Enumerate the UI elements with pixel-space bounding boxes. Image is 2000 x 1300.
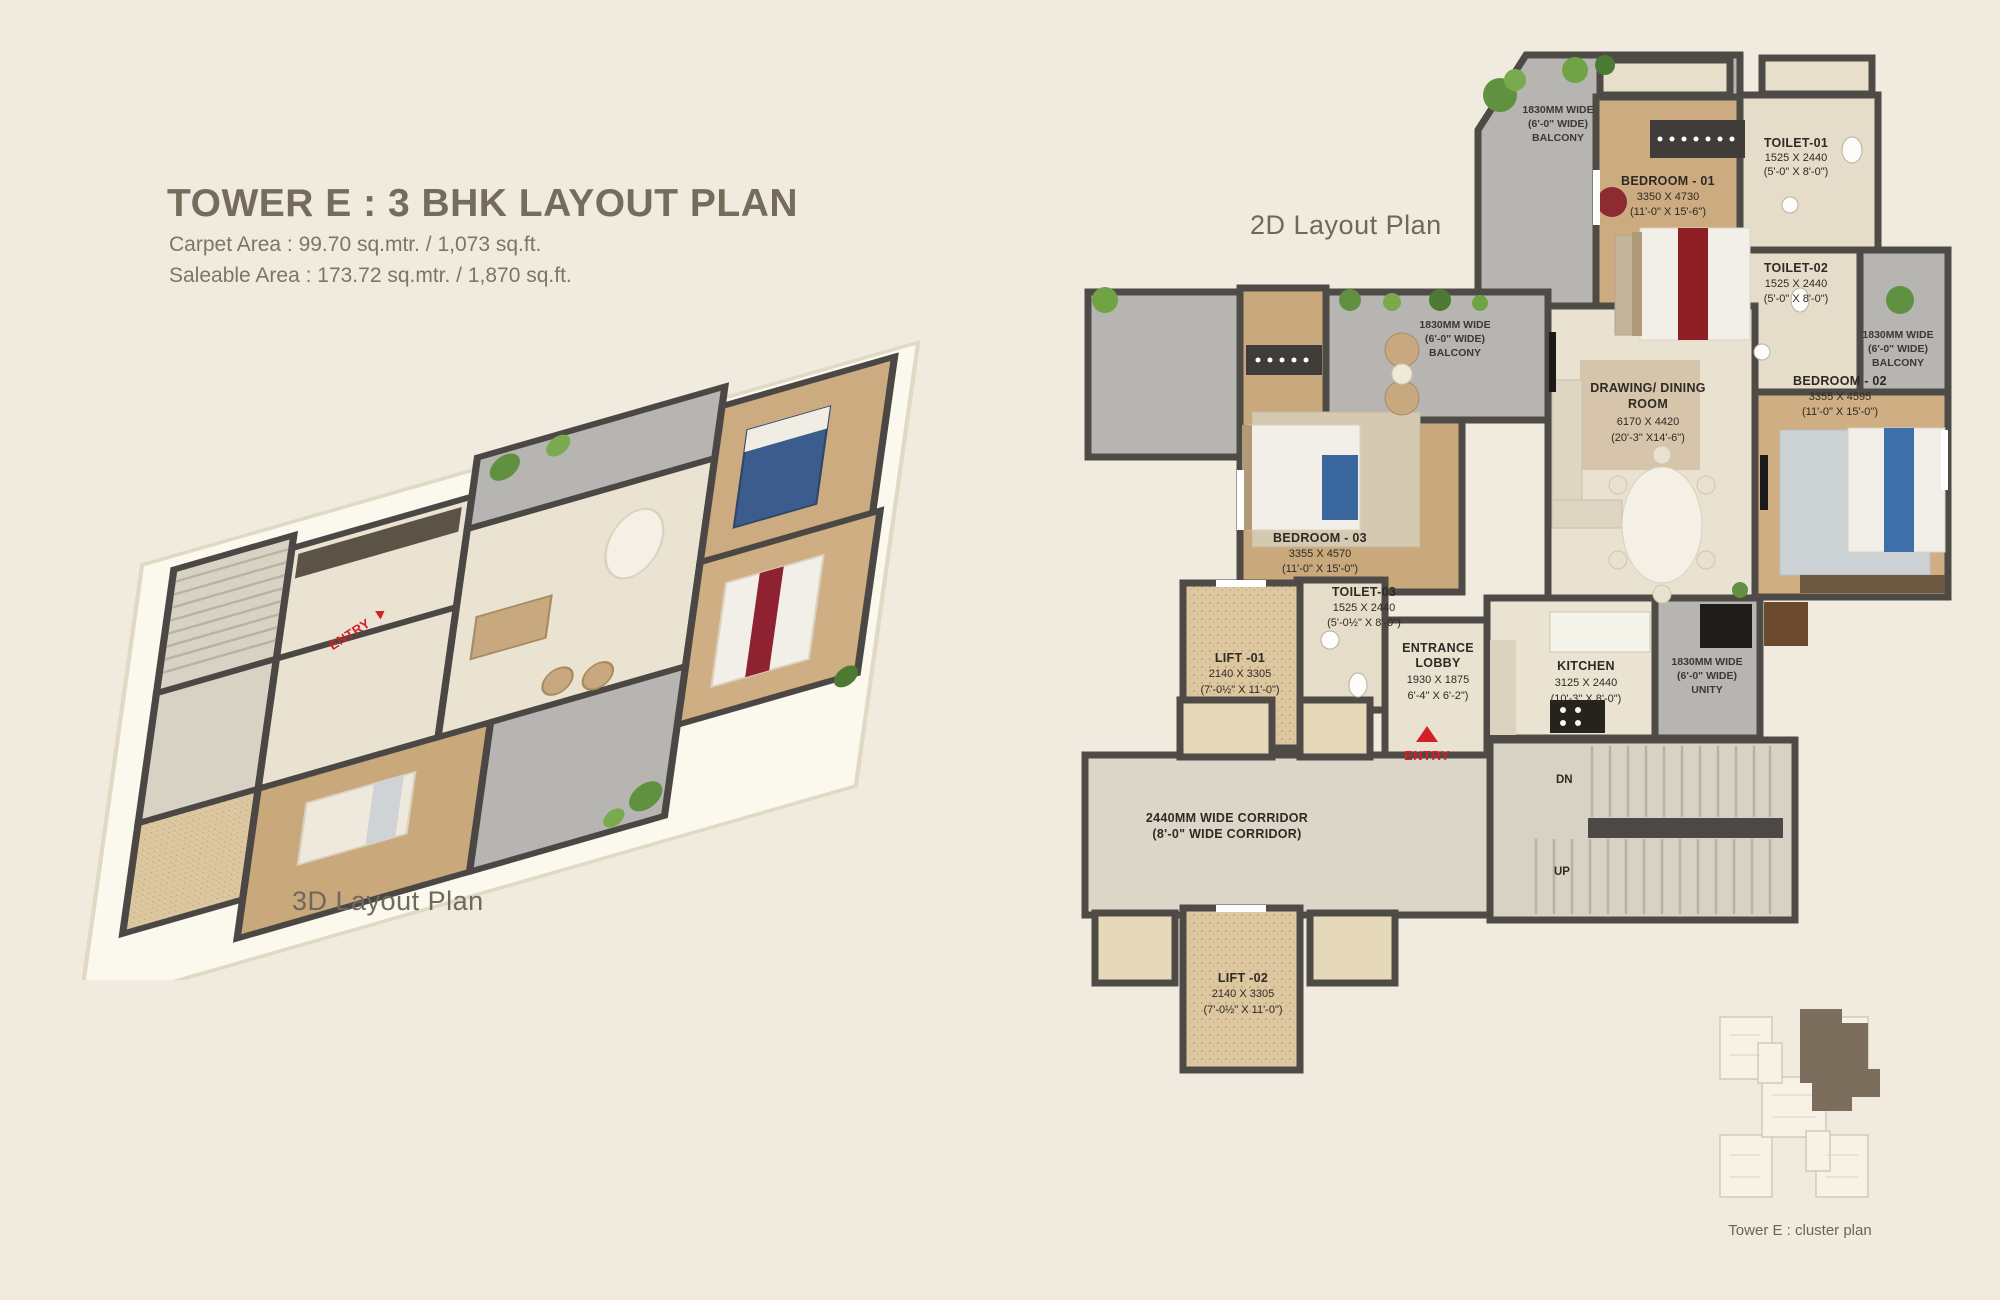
tv-icon [1760, 455, 1768, 510]
bed-runner-red [1678, 228, 1708, 340]
corridor-nook [1180, 700, 1272, 757]
wardrobe-icon [1800, 575, 1945, 593]
label-toilet-02: TOILET-02 1525 X 2440 (5'-0" X 8'-0") [1764, 261, 1829, 305]
plan-3d-group [80, 331, 920, 980]
kitchen-counter [1490, 640, 1516, 735]
armchair-icon [1385, 333, 1419, 367]
toilet-icon [1842, 137, 1862, 163]
svg-text:KITCHEN: KITCHEN [1557, 659, 1615, 673]
dining-table-icon [1622, 467, 1702, 583]
washer-icon [1700, 604, 1752, 648]
svg-text:1525 X 2440: 1525 X 2440 [1765, 278, 1827, 290]
plan-3d-figure: ENTRY [60, 320, 940, 980]
rug [1580, 360, 1700, 470]
label-dn: DN [1556, 774, 1573, 786]
svg-text:LIFT -01: LIFT -01 [1215, 651, 1265, 665]
plant-icon [1092, 287, 1118, 313]
cabinet-icon [1764, 602, 1808, 646]
svg-text:2140 X 3305: 2140 X 3305 [1212, 988, 1274, 1000]
label-balcony-mid: 1830MM WIDE (6'-0" WIDE) BALCONY [1419, 319, 1490, 359]
label-up: UP [1554, 866, 1570, 878]
title-block: TOWER E : 3 BHK LAYOUT PLAN Carpet Area … [167, 182, 798, 288]
plant-icon [1383, 293, 1401, 311]
cluster-plan-figure [1700, 1005, 1895, 1215]
svg-text:3355 X 4570: 3355 X 4570 [1289, 548, 1351, 560]
corridor-nook [1095, 913, 1175, 983]
lift-door [1216, 905, 1266, 912]
room-toilet-03 [1297, 580, 1385, 710]
svg-text:(5'-0½" X 8'-0"): (5'-0½" X 8'-0") [1327, 617, 1401, 629]
svg-text:1830MM WIDE: 1830MM WIDE [1671, 656, 1742, 668]
plan-2d-figure: 1830MM WIDE (6'-0" WIDE) BALCONY TOILET-… [1060, 40, 1960, 1100]
plant-icon [1562, 57, 1588, 83]
planter-band [1762, 58, 1872, 94]
svg-text:(5'-0" X 8'-0"): (5'-0" X 8'-0") [1764, 293, 1829, 305]
svg-text:BALCONY: BALCONY [1872, 357, 1924, 369]
label-balcony-right: 1830MM WIDE (6'-0" WIDE) BALCONY [1862, 329, 1933, 369]
svg-text:6170 X 4420: 6170 X 4420 [1617, 416, 1679, 428]
svg-text:3350 X 4730: 3350 X 4730 [1637, 191, 1699, 203]
svg-text:LOBBY: LOBBY [1415, 656, 1461, 670]
page-title: TOWER E : 3 BHK LAYOUT PLAN [167, 182, 798, 226]
corridor-nook [1300, 700, 1370, 757]
svg-text:(11'-0" X 15'-6"): (11'-0" X 15'-6") [1630, 206, 1706, 218]
page: TOWER E : 3 BHK LAYOUT PLAN Carpet Area … [0, 0, 2000, 1300]
svg-text:6'-4" X 6'-2"): 6'-4" X 6'-2") [1408, 690, 1469, 702]
sofa-icon [1552, 380, 1582, 500]
svg-text:(11'-0" X 15'-0"): (11'-0" X 15'-0") [1802, 406, 1878, 418]
label-kitchen: KITCHEN 3125 X 2440 (10'-3" X 8'-0") [1551, 659, 1622, 705]
svg-text:TOILET-01: TOILET-01 [1764, 136, 1828, 150]
svg-text:1525 X 2440: 1525 X 2440 [1765, 152, 1827, 164]
sink-icon [1321, 631, 1339, 649]
svg-text:(6'-0" WIDE): (6'-0" WIDE) [1677, 670, 1737, 682]
bed-headboard [1632, 232, 1642, 336]
cluster-highlight-unit [1800, 1009, 1880, 1111]
window [1941, 430, 1948, 490]
svg-text:DRAWING/ DINING: DRAWING/ DINING [1590, 381, 1706, 395]
tv-icon [1549, 332, 1556, 392]
planter-band [1600, 60, 1730, 95]
side-table-icon [1392, 364, 1412, 384]
svg-text:(10'-3" X 8'-0"): (10'-3" X 8'-0") [1551, 693, 1622, 705]
svg-text:UNITY: UNITY [1691, 684, 1723, 696]
svg-text:LIFT -02: LIFT -02 [1218, 971, 1268, 985]
window [1593, 170, 1600, 225]
svg-text:(7'-0½" X 11'-0"): (7'-0½" X 11'-0") [1203, 1004, 1282, 1016]
bed-throw-blue [1322, 455, 1358, 520]
svg-text:(5'-0" X 8'-0"): (5'-0" X 8'-0") [1764, 166, 1829, 178]
svg-text:2140 X 3305: 2140 X 3305 [1209, 668, 1271, 680]
corridor-nook [1310, 913, 1395, 983]
svg-text:1525 X 2440: 1525 X 2440 [1333, 602, 1395, 614]
svg-text:2440MM WIDE CORRIDOR: 2440MM WIDE CORRIDOR [1146, 811, 1308, 825]
svg-text:(11'-0" X 15'-0"): (11'-0" X 15'-0") [1282, 563, 1358, 575]
svg-text:BEDROOM - 01: BEDROOM - 01 [1621, 174, 1715, 188]
sink-icon [1754, 344, 1770, 360]
svg-text:BEDROOM - 02: BEDROOM - 02 [1793, 374, 1887, 388]
svg-text:3355 X 4595: 3355 X 4595 [1809, 391, 1871, 403]
plant-icon [1732, 582, 1748, 598]
svg-text:(20'-3" X14'-6"): (20'-3" X14'-6") [1611, 432, 1685, 444]
plant-icon [1886, 286, 1914, 314]
armchair-icon [1597, 187, 1627, 217]
svg-text:(6'-0" WIDE): (6'-0" WIDE) [1425, 333, 1485, 345]
sink-icon [1782, 197, 1798, 213]
svg-text:(7'-0½" X 11'-0"): (7'-0½" X 11'-0") [1200, 684, 1279, 696]
label-toilet-03: TOILET-03 1525 X 2440 (5'-0½" X 8'-0") [1327, 585, 1401, 629]
label-balcony-top: 1830MM WIDE (6'-0" WIDE) BALCONY [1522, 104, 1593, 144]
kitchen-island-icon [1550, 612, 1650, 652]
svg-text:1830MM WIDE: 1830MM WIDE [1419, 319, 1490, 331]
svg-text:(6'-0" WIDE): (6'-0" WIDE) [1528, 118, 1588, 130]
plant-icon [1429, 289, 1451, 311]
svg-text:1930 X 1875: 1930 X 1875 [1407, 674, 1469, 686]
label-toilet-01: TOILET-01 1525 X 2440 (5'-0" X 8'-0") [1764, 136, 1829, 178]
cluster-caption: Tower E : cluster plan [1690, 1222, 1910, 1239]
entry-label-2d: ENTRY [1404, 748, 1450, 763]
svg-text:TOILET-03: TOILET-03 [1332, 585, 1396, 599]
plan-3d-caption: 3D Layout Plan [292, 886, 484, 917]
svg-text:3125 X 2440: 3125 X 2440 [1555, 677, 1617, 689]
bed-runner-blue [1884, 428, 1914, 552]
svg-text:BALCONY: BALCONY [1429, 347, 1481, 359]
lift-door [1216, 580, 1266, 587]
plant-icon [1504, 69, 1526, 91]
window [1237, 470, 1244, 530]
svg-text:1830MM WIDE: 1830MM WIDE [1862, 329, 1933, 341]
room-balcony-left [1088, 292, 1240, 457]
svg-text:1830MM WIDE: 1830MM WIDE [1522, 104, 1593, 116]
armchair-icon [1385, 381, 1419, 415]
toilet-icon [1349, 673, 1367, 697]
sofa-icon [1552, 500, 1622, 528]
plant-icon [1595, 55, 1615, 75]
svg-text:BALCONY: BALCONY [1532, 132, 1584, 144]
stairs-landing [1588, 818, 1783, 838]
plant-icon [1339, 289, 1361, 311]
svg-text:BEDROOM - 03: BEDROOM - 03 [1273, 531, 1367, 545]
svg-text:TOILET-02: TOILET-02 [1764, 261, 1828, 275]
carpet-area-text: Carpet Area : 99.70 sq.mtr. / 1,073 sq.f… [169, 233, 798, 257]
svg-text:(8'-0" WIDE CORRIDOR): (8'-0" WIDE CORRIDOR) [1152, 827, 1301, 841]
svg-text:ENTRANCE: ENTRANCE [1402, 641, 1474, 655]
svg-text:ROOM: ROOM [1628, 397, 1668, 411]
svg-text:(6'-0" WIDE): (6'-0" WIDE) [1868, 343, 1928, 355]
plant-icon [1472, 295, 1488, 311]
saleable-area-text: Saleable Area : 173.72 sq.mtr. / 1,870 s… [169, 264, 798, 288]
